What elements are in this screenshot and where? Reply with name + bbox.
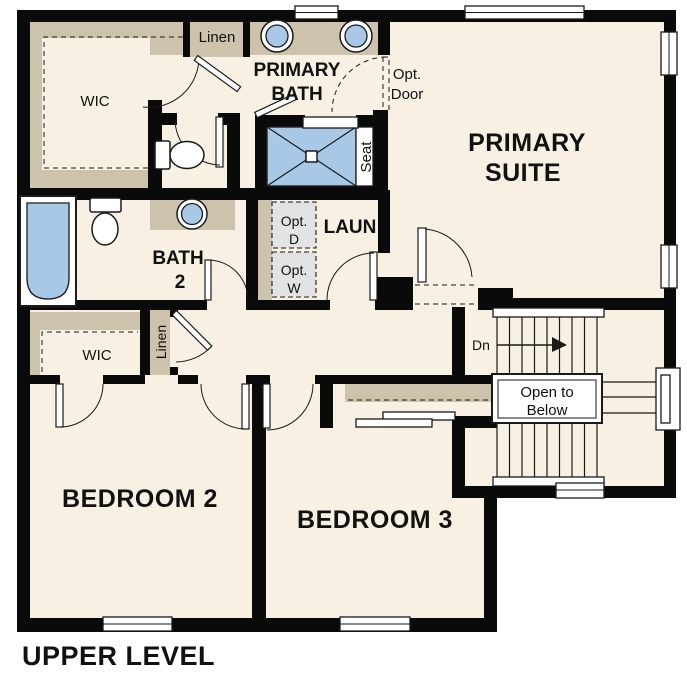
stairs-dn-label: Dn bbox=[472, 337, 490, 353]
toilet bbox=[90, 198, 121, 245]
stair-top-landing bbox=[493, 308, 604, 317]
primary-bath-label-2: BATH bbox=[271, 84, 322, 105]
suite-entry-alcove bbox=[413, 283, 478, 306]
bath2-door-leaf bbox=[205, 260, 211, 300]
opt-washer-label-2: W bbox=[287, 280, 301, 296]
opt-washer-label-1: Opt. bbox=[281, 262, 307, 278]
bedroom3-label: BEDROOM 3 bbox=[297, 506, 453, 534]
bedroom2-label: BEDROOM 2 bbox=[62, 485, 218, 513]
opt-dryer-label-1: Opt. bbox=[281, 213, 307, 229]
plan-title: UPPER LEVEL bbox=[22, 641, 215, 671]
open-to-below-label-2: Below bbox=[527, 402, 568, 419]
seat-label: Seat bbox=[358, 141, 375, 173]
laundry-wall-strip bbox=[258, 196, 272, 300]
opt-door-label-2: Door bbox=[391, 86, 424, 103]
open-to-below-label-1: Open to bbox=[520, 384, 573, 401]
opt-door-label-1: Opt. bbox=[393, 66, 421, 83]
linen-upper-label: Linen bbox=[199, 29, 236, 46]
bath2-label-1: BATH bbox=[152, 248, 203, 269]
primary-suite-label-2: SUITE bbox=[485, 159, 561, 187]
sink bbox=[177, 199, 207, 229]
laundry-door-leaf bbox=[370, 252, 377, 300]
bathtub bbox=[20, 196, 76, 306]
toilet bbox=[155, 141, 204, 169]
shower-drain bbox=[306, 151, 317, 162]
primary-suite-label-1: PRIMARY bbox=[468, 129, 586, 157]
floor-plan-drawing: WIC Linen PRIMARY BATH Opt. Door Seat PR… bbox=[0, 0, 687, 687]
sink bbox=[340, 20, 372, 52]
bedroom2-door-leaf bbox=[242, 384, 249, 429]
laundry-label: LAUN bbox=[324, 217, 377, 238]
wic-primary-label: WIC bbox=[80, 93, 109, 110]
primary-bath-label-1: PRIMARY bbox=[254, 60, 341, 81]
floor-plan: WIC Linen PRIMARY BATH Opt. Door Seat PR… bbox=[0, 0, 687, 687]
toilet-room-door-leaf bbox=[216, 117, 223, 167]
wic-bedroom2-label: WIC bbox=[82, 347, 111, 364]
bedroom3-closet-shelf bbox=[345, 384, 492, 402]
linen-hall-label: Linen bbox=[153, 325, 169, 359]
bath2-label-2: 2 bbox=[175, 272, 186, 293]
shower-door-sill bbox=[303, 117, 358, 128]
bedroom3-door-leaf bbox=[263, 384, 270, 428]
primary-suite-door-leaf bbox=[418, 228, 426, 282]
opt-dryer-label-2: D bbox=[289, 231, 299, 247]
wic-bedroom2-door-leaf bbox=[56, 384, 63, 427]
sink bbox=[261, 20, 293, 52]
